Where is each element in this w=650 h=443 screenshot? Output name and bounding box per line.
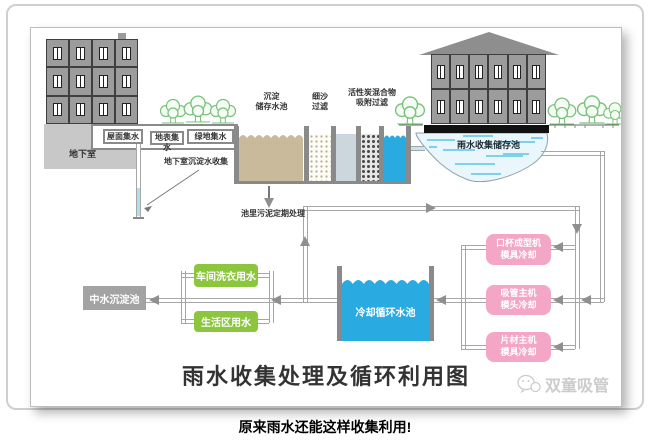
window: [432, 90, 449, 123]
tank-wall: [234, 126, 239, 184]
tank-wall: [406, 126, 411, 184]
pipe-stub: [181, 319, 194, 324]
green-collect-label: 绿地集水: [187, 129, 234, 144]
use-box-living: 生活区用水: [194, 311, 258, 332]
window: [116, 68, 137, 94]
window: [93, 68, 114, 94]
factory-building: [46, 39, 138, 124]
pipe-usage: [146, 298, 337, 303]
basement-drain-water: [137, 188, 140, 216]
pipe-riser: [303, 206, 308, 302]
window: [528, 90, 545, 123]
pipe-stub: [258, 319, 269, 324]
pipe-collector-left: [461, 245, 466, 349]
window: [116, 40, 137, 66]
basement-label: 地下室: [69, 149, 96, 160]
window: [451, 55, 468, 88]
window: [47, 40, 68, 66]
flow-arrow-left: [436, 295, 446, 305]
flow-arrow-left: [149, 295, 159, 305]
diagram-title: 雨水收集处理及循环利用图: [146, 359, 506, 391]
window: [432, 55, 449, 88]
window: [528, 55, 545, 88]
window: [451, 90, 468, 123]
sludge-arrow: [264, 198, 274, 208]
page: 地下室 屋面集水 地表集水 绿地集水 地下室沉淀水收集 沉淀 储存水池 细沙 过…: [0, 0, 650, 443]
mid-filter-fill: [336, 134, 356, 181]
house-building: [431, 54, 546, 124]
sludge-note: 池里污泥定期处理: [241, 209, 305, 219]
carbon-filter-fill: [361, 134, 379, 181]
pipe-top-supply: [303, 206, 579, 211]
window: [47, 97, 68, 123]
window: [47, 68, 68, 94]
window: [93, 40, 114, 66]
window: [470, 55, 487, 88]
flow-arrow-left: [553, 242, 563, 252]
flow-arrow-left: [581, 295, 591, 305]
watermark: 双童吸管: [517, 372, 609, 396]
window: [509, 90, 526, 123]
reclaim-pool-box: 中水沉淀池: [83, 286, 146, 310]
pipe-stub: [258, 273, 269, 278]
machine-box-cup: 口杯成型机 模具冷却: [486, 234, 551, 265]
pool-wall: [429, 266, 434, 341]
tank-wall: [304, 126, 309, 184]
watermark-text: 双童吸管: [545, 372, 609, 396]
surface-collect-label: 地表集水: [150, 131, 184, 145]
sand-filter-label: 细沙 过滤: [303, 92, 337, 112]
house-roof: [419, 32, 559, 55]
tank-wall: [331, 126, 336, 184]
window: [93, 97, 114, 123]
sand-filter-fill: [309, 134, 331, 181]
machine-box-straw: 吸管主机 模头冷却: [486, 285, 551, 315]
window: [70, 97, 91, 123]
tank-wall: [356, 126, 361, 184]
tank-wall: [379, 126, 384, 184]
flow-arrow-right: [426, 203, 436, 213]
use-box-laundry: 车间洗衣用水: [194, 264, 258, 287]
window: [70, 40, 91, 66]
basement-drain-label: 地下室沉淀水收集: [164, 157, 228, 167]
window: [489, 90, 506, 123]
tank-bottom: [234, 181, 411, 184]
pipe-bracket: [181, 271, 186, 323]
sediment-tank-label: 沉淀 储存水池: [239, 92, 304, 112]
flow-arrow-left: [271, 295, 281, 305]
window: [470, 90, 487, 123]
cooling-pool-label: 冷却循环水池: [342, 304, 429, 319]
flow-arrow-left: [553, 295, 563, 305]
window: [70, 68, 91, 94]
window: [116, 97, 137, 123]
carbon-filter-label: 活性炭混合物 吸附过滤: [333, 88, 411, 108]
pipe-stub: [461, 345, 486, 350]
ground-band: [424, 125, 549, 133]
page-caption: 原来雨水还能这样收集利用!: [0, 417, 650, 437]
pipe-stub: [461, 245, 486, 250]
basement-drain-cap: [133, 217, 144, 219]
window: [489, 55, 506, 88]
roof-collect-label: 屋面集水: [103, 129, 143, 144]
machine-box-sheet: 片材主机 模具冷却: [486, 332, 551, 362]
flow-arrow-up: [300, 236, 310, 246]
pipe-pond-out-h: [541, 151, 604, 156]
diagram-card: 地下室 屋面集水 地表集水 绿地集水 地下室沉淀水收集 沉淀 储存水池 细沙 过…: [30, 27, 622, 407]
sludge-arrow-shaft: [268, 186, 270, 198]
storage-pond-label: 雨水收集储存池: [441, 140, 536, 151]
flow-arrow-left: [553, 342, 563, 352]
wechat-logo-icon: [517, 374, 541, 394]
pipe-pond-out-v: [600, 151, 605, 302]
window: [509, 55, 526, 88]
pipe-stub: [181, 273, 194, 278]
flow-arrow-down: [572, 224, 582, 234]
